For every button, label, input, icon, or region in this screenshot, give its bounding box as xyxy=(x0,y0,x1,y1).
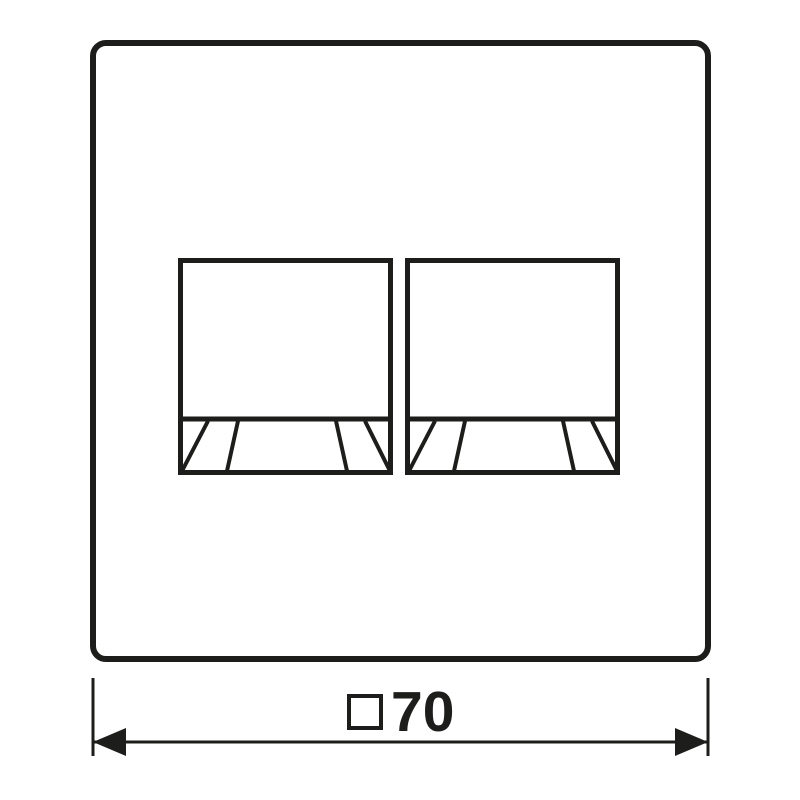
left-jack-perspective-line-2 xyxy=(227,421,238,471)
right-jack-perspective-line-1 xyxy=(409,421,435,471)
left-jack-perspective-line-3 xyxy=(336,421,347,471)
dimension-value-text: 70 xyxy=(391,680,454,744)
right-jack-perspective-line-4 xyxy=(592,421,617,471)
left-jack-frame xyxy=(181,261,391,473)
dimension-arrowhead-right xyxy=(675,728,708,756)
right-jack-frame xyxy=(408,261,618,473)
square-dimension-symbol xyxy=(349,696,381,728)
left-jack-perspective-line-1 xyxy=(182,421,208,471)
technical-drawing-canvas: 70 xyxy=(0,0,800,800)
right-jack-perspective-line-2 xyxy=(454,421,465,471)
right-jack-perspective-line-3 xyxy=(563,421,574,471)
left-jack-perspective-line-4 xyxy=(365,421,390,471)
dimension-annotation: 70 xyxy=(93,678,708,756)
left-jack-opening xyxy=(180,261,391,473)
technical-drawing: 70 xyxy=(0,0,800,800)
right-jack-opening xyxy=(407,261,618,473)
dimension-arrowhead-left xyxy=(93,728,126,756)
